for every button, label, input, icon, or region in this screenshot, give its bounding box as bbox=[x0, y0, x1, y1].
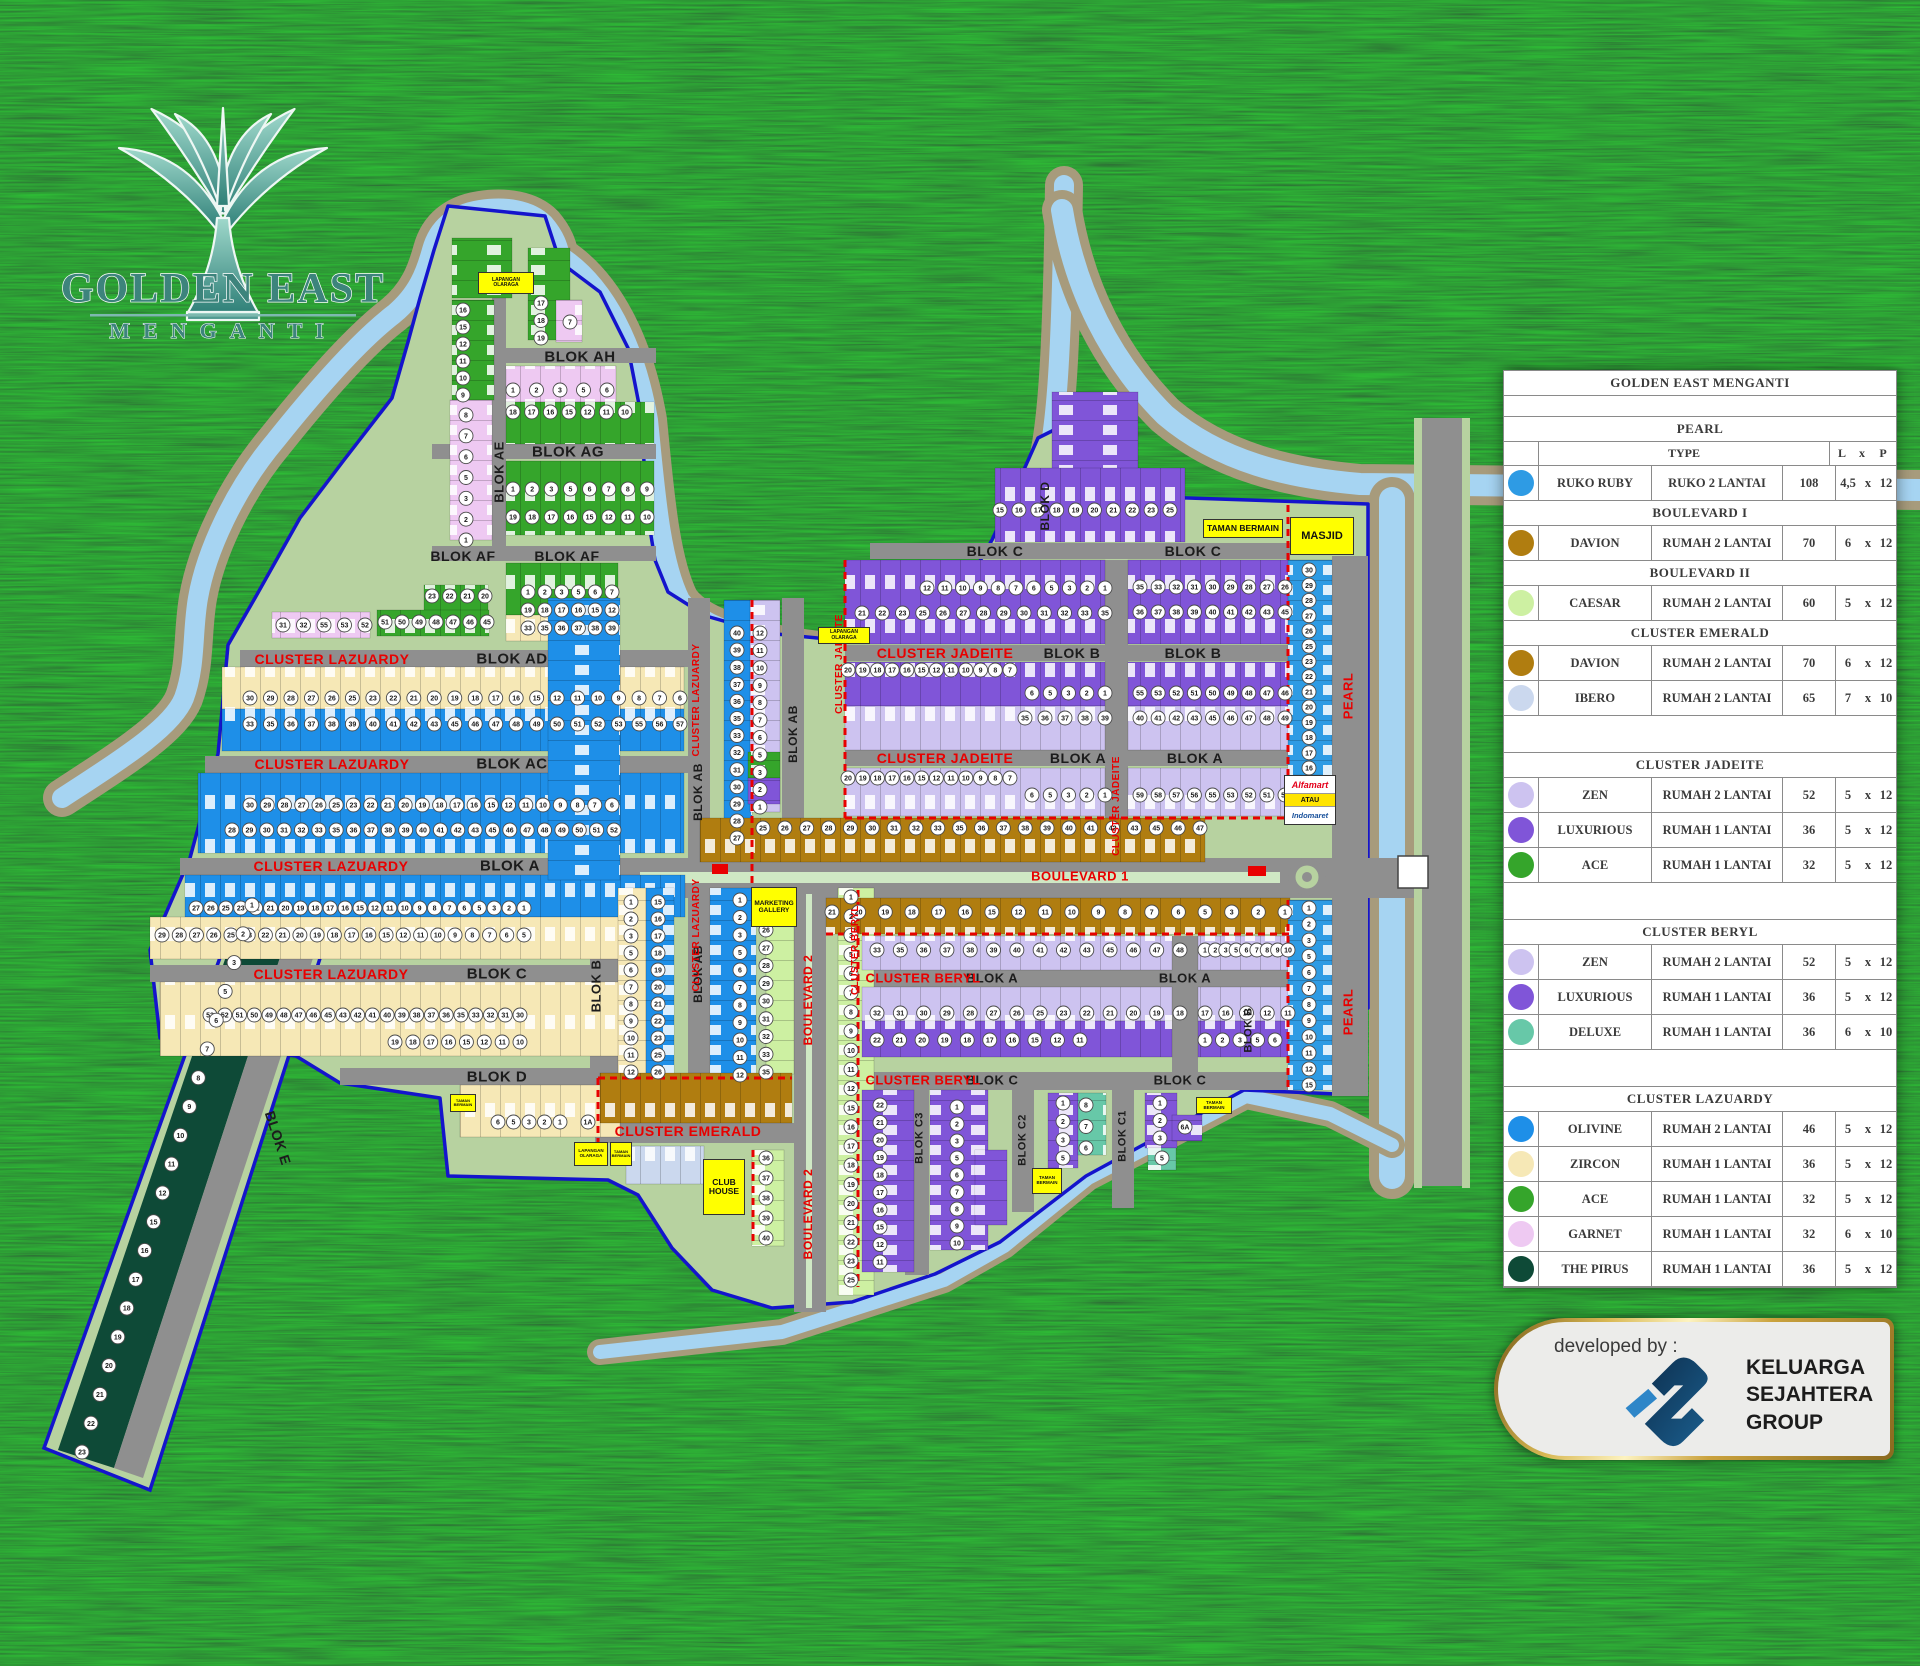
legend-title: GOLDEN EAST MENGANTI bbox=[1504, 371, 1896, 396]
svg-text:6: 6 bbox=[610, 803, 614, 810]
svg-text:2: 2 bbox=[543, 1120, 547, 1127]
svg-text:12: 12 bbox=[1054, 1038, 1062, 1045]
svg-text:8: 8 bbox=[993, 668, 997, 675]
legend-row-caesar: CAESARRUMAH 2 LANTAI605x12 bbox=[1504, 586, 1896, 621]
svg-text:21: 21 bbox=[858, 611, 866, 618]
svg-text:43: 43 bbox=[1083, 948, 1091, 955]
svg-text:39: 39 bbox=[608, 626, 616, 633]
svg-text:5: 5 bbox=[738, 950, 742, 957]
svg-text:21: 21 bbox=[267, 906, 275, 913]
svg-text:22: 22 bbox=[1128, 508, 1136, 515]
svg-text:52: 52 bbox=[361, 623, 369, 630]
svg-text:12: 12 bbox=[756, 631, 764, 638]
svg-text:2: 2 bbox=[629, 917, 633, 924]
svg-text:10: 10 bbox=[401, 906, 409, 913]
svg-text:33: 33 bbox=[733, 733, 741, 740]
svg-text:9: 9 bbox=[758, 683, 762, 690]
svg-text:50: 50 bbox=[398, 620, 406, 627]
svg-text:27: 27 bbox=[959, 611, 967, 618]
svg-text:2: 2 bbox=[1061, 1119, 1065, 1126]
svg-text:5: 5 bbox=[464, 475, 468, 482]
svg-text:21: 21 bbox=[876, 1120, 884, 1127]
svg-text:8: 8 bbox=[464, 413, 468, 420]
svg-text:32: 32 bbox=[762, 1034, 770, 1041]
svg-text:25: 25 bbox=[1305, 644, 1313, 651]
block-label: BLOK A bbox=[1159, 972, 1211, 985]
svg-text:49: 49 bbox=[1227, 691, 1235, 698]
svg-text:11: 11 bbox=[498, 1040, 506, 1047]
svg-text:55: 55 bbox=[1136, 691, 1144, 698]
svg-text:30: 30 bbox=[762, 999, 770, 1006]
facility-marketing-gallery: MARKETING GALLERY bbox=[751, 887, 797, 927]
svg-text:1: 1 bbox=[849, 895, 853, 902]
svg-text:30: 30 bbox=[246, 803, 254, 810]
svg-text:48: 48 bbox=[1263, 716, 1271, 723]
svg-text:19: 19 bbox=[847, 1182, 855, 1189]
svg-text:26: 26 bbox=[939, 611, 947, 618]
svg-text:6: 6 bbox=[214, 1018, 218, 1025]
svg-text:5: 5 bbox=[1048, 691, 1052, 698]
svg-text:37: 37 bbox=[367, 828, 375, 835]
svg-text:31: 31 bbox=[733, 767, 741, 774]
svg-text:17: 17 bbox=[528, 410, 536, 417]
svg-text:10: 10 bbox=[621, 410, 629, 417]
cluster-label: PEARL bbox=[1342, 989, 1355, 1036]
legend-section-header: CLUSTER BERYL bbox=[1504, 920, 1896, 945]
svg-text:30: 30 bbox=[1305, 568, 1313, 575]
svg-text:8: 8 bbox=[433, 906, 437, 913]
svg-text:21: 21 bbox=[279, 933, 287, 940]
svg-text:12: 12 bbox=[932, 668, 940, 675]
svg-text:2: 2 bbox=[1307, 922, 1311, 929]
svg-text:18: 18 bbox=[908, 910, 916, 917]
svg-text:47: 47 bbox=[449, 620, 457, 627]
svg-text:18: 18 bbox=[528, 515, 536, 522]
svg-text:9: 9 bbox=[461, 393, 465, 400]
svg-text:1: 1 bbox=[1283, 910, 1287, 917]
svg-text:21: 21 bbox=[1109, 508, 1117, 515]
svg-text:3: 3 bbox=[1067, 793, 1071, 800]
svg-text:19: 19 bbox=[524, 608, 532, 615]
svg-text:45: 45 bbox=[451, 722, 459, 729]
svg-text:12: 12 bbox=[876, 1242, 884, 1249]
legend-spacer bbox=[1504, 396, 1896, 417]
svg-text:46: 46 bbox=[1227, 716, 1235, 723]
svg-text:8: 8 bbox=[470, 933, 474, 940]
svg-text:20: 20 bbox=[844, 668, 852, 675]
svg-text:27: 27 bbox=[762, 945, 770, 952]
svg-text:18: 18 bbox=[330, 933, 338, 940]
svg-text:28: 28 bbox=[966, 1011, 974, 1018]
svg-text:6: 6 bbox=[1032, 586, 1036, 593]
svg-text:12: 12 bbox=[627, 1070, 635, 1077]
svg-text:10: 10 bbox=[434, 933, 442, 940]
cluster-label: CLUSTER LAZUARDY bbox=[692, 879, 702, 992]
svg-text:2: 2 bbox=[543, 590, 547, 597]
block-label: BLOK D bbox=[1039, 482, 1051, 531]
svg-text:6: 6 bbox=[505, 933, 509, 940]
svg-text:5: 5 bbox=[582, 388, 586, 395]
svg-text:41: 41 bbox=[1036, 948, 1044, 955]
developer-name: KELUARGA SEJAHTERA GROUP bbox=[1746, 1354, 1873, 1436]
svg-text:50: 50 bbox=[575, 828, 583, 835]
svg-text:17: 17 bbox=[537, 301, 545, 308]
facility-taman-bermain: TAMAN BERMAIN bbox=[610, 1142, 632, 1166]
svg-text:11: 11 bbox=[941, 586, 949, 593]
svg-text:1: 1 bbox=[1307, 906, 1311, 913]
svg-text:52: 52 bbox=[610, 828, 618, 835]
svg-text:3: 3 bbox=[1067, 691, 1071, 698]
svg-text:7: 7 bbox=[607, 487, 611, 494]
svg-text:16: 16 bbox=[546, 410, 554, 417]
svg-text:20: 20 bbox=[1129, 1011, 1137, 1018]
cluster-label: CLUSTER LAZUARDY bbox=[255, 652, 410, 666]
svg-text:36: 36 bbox=[920, 948, 928, 955]
svg-text:12: 12 bbox=[736, 1073, 744, 1080]
svg-text:1: 1 bbox=[1103, 691, 1107, 698]
svg-text:12: 12 bbox=[923, 586, 931, 593]
svg-text:22: 22 bbox=[1305, 674, 1313, 681]
svg-text:6A: 6A bbox=[1181, 1125, 1190, 1132]
svg-text:30: 30 bbox=[868, 826, 876, 833]
svg-text:8: 8 bbox=[1084, 1103, 1088, 1110]
block-label: BLOK C bbox=[967, 544, 1024, 558]
svg-text:25: 25 bbox=[919, 611, 927, 618]
svg-text:11: 11 bbox=[386, 906, 394, 913]
svg-text:45: 45 bbox=[1106, 948, 1114, 955]
svg-text:23: 23 bbox=[1060, 1011, 1068, 1018]
svg-text:26: 26 bbox=[210, 933, 218, 940]
svg-text:16: 16 bbox=[567, 515, 575, 522]
svg-text:50: 50 bbox=[1209, 691, 1217, 698]
svg-text:7: 7 bbox=[1008, 668, 1012, 675]
svg-text:49: 49 bbox=[415, 620, 423, 627]
svg-text:15: 15 bbox=[565, 410, 573, 417]
svg-text:47: 47 bbox=[1245, 716, 1253, 723]
svg-text:21: 21 bbox=[1106, 1011, 1114, 1018]
svg-text:16: 16 bbox=[654, 917, 662, 924]
svg-text:18: 18 bbox=[1176, 1011, 1184, 1018]
svg-text:25: 25 bbox=[759, 826, 767, 833]
legend-section-header: BOULEVARD II bbox=[1504, 561, 1896, 586]
ksg-logo-icon bbox=[1616, 1354, 1726, 1450]
svg-text:1: 1 bbox=[526, 590, 530, 597]
svg-text:45: 45 bbox=[483, 620, 491, 627]
svg-text:35: 35 bbox=[956, 826, 964, 833]
svg-text:23: 23 bbox=[350, 803, 358, 810]
svg-text:18: 18 bbox=[541, 608, 549, 615]
svg-text:6: 6 bbox=[955, 1173, 959, 1180]
svg-text:47: 47 bbox=[1263, 691, 1271, 698]
svg-text:16: 16 bbox=[512, 696, 520, 703]
svg-text:6: 6 bbox=[738, 968, 742, 975]
svg-text:7: 7 bbox=[955, 1190, 959, 1197]
svg-text:3: 3 bbox=[492, 906, 496, 913]
svg-text:20: 20 bbox=[430, 696, 438, 703]
svg-text:37: 37 bbox=[762, 1176, 770, 1183]
svg-text:49: 49 bbox=[1281, 716, 1289, 723]
svg-text:49: 49 bbox=[533, 722, 541, 729]
svg-text:33: 33 bbox=[762, 1052, 770, 1059]
svg-text:2: 2 bbox=[758, 787, 762, 794]
svg-text:12: 12 bbox=[553, 696, 561, 703]
legend-column-headers: TYPELxP bbox=[1504, 442, 1896, 466]
svg-text:7: 7 bbox=[448, 906, 452, 913]
svg-text:9: 9 bbox=[979, 776, 983, 783]
svg-text:27: 27 bbox=[193, 933, 201, 940]
svg-text:20: 20 bbox=[918, 1038, 926, 1045]
svg-text:48: 48 bbox=[280, 1013, 288, 1020]
svg-text:39: 39 bbox=[733, 648, 741, 655]
block-label: BLOK B bbox=[1244, 1007, 1255, 1052]
legend-row-garnet: GARNETRUMAH 1 LANTAI326x10 bbox=[1504, 1217, 1896, 1252]
svg-text:1: 1 bbox=[738, 898, 742, 905]
svg-text:1: 1 bbox=[758, 805, 762, 812]
svg-text:9: 9 bbox=[558, 803, 562, 810]
facility-lapangan-olaraga: LAPANGAN OLARAGA bbox=[818, 627, 870, 644]
svg-text:46: 46 bbox=[1174, 826, 1182, 833]
svg-text:10: 10 bbox=[736, 1038, 744, 1045]
svg-text:11: 11 bbox=[168, 1162, 176, 1169]
svg-text:15: 15 bbox=[463, 1040, 471, 1047]
svg-text:9: 9 bbox=[1276, 948, 1280, 955]
svg-text:8: 8 bbox=[629, 1002, 633, 1009]
block-label: BLOK AE bbox=[493, 441, 506, 503]
svg-text:10: 10 bbox=[1068, 910, 1076, 917]
svg-text:37: 37 bbox=[575, 626, 583, 633]
svg-text:55: 55 bbox=[320, 623, 328, 630]
legend-row-davion: DAVIONRUMAH 2 LANTAI706x12 bbox=[1504, 526, 1896, 561]
svg-text:27: 27 bbox=[298, 803, 306, 810]
svg-text:48: 48 bbox=[432, 620, 440, 627]
svg-text:6: 6 bbox=[758, 735, 762, 742]
svg-text:18: 18 bbox=[471, 696, 479, 703]
svg-text:11: 11 bbox=[603, 410, 611, 417]
svg-text:41: 41 bbox=[368, 1013, 376, 1020]
cluster-label: CLUSTER LAZUARDY bbox=[692, 644, 702, 757]
svg-text:12: 12 bbox=[1015, 910, 1023, 917]
svg-text:12: 12 bbox=[605, 515, 613, 522]
svg-text:12: 12 bbox=[459, 342, 467, 349]
svg-text:43: 43 bbox=[1131, 826, 1139, 833]
block-label: BLOK AF bbox=[534, 549, 599, 563]
cluster-label: BOULEVARD 2 bbox=[802, 1169, 814, 1260]
svg-text:2: 2 bbox=[1221, 1038, 1225, 1045]
svg-text:9: 9 bbox=[979, 668, 983, 675]
svg-text:19: 19 bbox=[537, 336, 545, 343]
svg-text:10: 10 bbox=[962, 776, 970, 783]
svg-text:19: 19 bbox=[313, 933, 321, 940]
svg-text:21: 21 bbox=[96, 1392, 104, 1399]
svg-text:11: 11 bbox=[417, 933, 425, 940]
svg-text:8: 8 bbox=[626, 487, 630, 494]
svg-text:11: 11 bbox=[1305, 1050, 1313, 1057]
svg-text:37: 37 bbox=[428, 1013, 436, 1020]
svg-text:16: 16 bbox=[1015, 508, 1023, 515]
cluster-label: CLUSTER LAZUARDY bbox=[254, 967, 409, 981]
svg-text:53: 53 bbox=[615, 722, 623, 729]
svg-text:38: 38 bbox=[591, 626, 599, 633]
facility-taman-bermain: TAMAN BERMAIN bbox=[1032, 1168, 1062, 1194]
svg-text:23: 23 bbox=[237, 906, 245, 913]
svg-text:11: 11 bbox=[947, 668, 955, 675]
cluster-label: CLUSTER JADEITE bbox=[877, 646, 1014, 660]
svg-text:47: 47 bbox=[1196, 826, 1204, 833]
svg-text:5: 5 bbox=[522, 933, 526, 940]
svg-text:32: 32 bbox=[487, 1013, 495, 1020]
svg-text:29: 29 bbox=[943, 1011, 951, 1018]
svg-text:16: 16 bbox=[341, 906, 349, 913]
svg-text:30: 30 bbox=[516, 1013, 524, 1020]
site-plan-poster: { "brand": {"title": "GOLDEN EAST", "sub… bbox=[0, 0, 1920, 1666]
svg-text:19: 19 bbox=[876, 1155, 884, 1162]
svg-text:39: 39 bbox=[990, 948, 998, 955]
svg-text:3: 3 bbox=[955, 1139, 959, 1146]
svg-text:29: 29 bbox=[847, 826, 855, 833]
svg-text:22: 22 bbox=[873, 1038, 881, 1045]
svg-text:7: 7 bbox=[1014, 586, 1018, 593]
svg-text:22: 22 bbox=[876, 1103, 884, 1110]
svg-text:33: 33 bbox=[1154, 585, 1162, 592]
svg-text:6: 6 bbox=[1245, 948, 1249, 955]
svg-text:18: 18 bbox=[311, 906, 319, 913]
svg-text:15: 15 bbox=[918, 668, 926, 675]
svg-text:21: 21 bbox=[654, 1002, 662, 1009]
svg-text:43: 43 bbox=[471, 828, 479, 835]
svg-text:48: 48 bbox=[541, 828, 549, 835]
svg-text:17: 17 bbox=[986, 1038, 994, 1045]
svg-text:45: 45 bbox=[489, 828, 497, 835]
svg-text:11: 11 bbox=[522, 803, 530, 810]
svg-text:15: 15 bbox=[876, 1225, 884, 1232]
svg-text:3: 3 bbox=[1307, 938, 1311, 945]
legend-row-deluxe: DELUXERUMAH 1 LANTAI366x10 bbox=[1504, 1015, 1896, 1050]
cluster-label: CLUSTER BERYL bbox=[865, 1074, 980, 1087]
svg-text:7: 7 bbox=[1084, 1124, 1088, 1131]
svg-text:37: 37 bbox=[999, 826, 1007, 833]
svg-text:57: 57 bbox=[676, 722, 684, 729]
svg-text:29: 29 bbox=[263, 803, 271, 810]
svg-text:32: 32 bbox=[733, 750, 741, 757]
svg-text:12: 12 bbox=[505, 803, 513, 810]
svg-text:22: 22 bbox=[262, 933, 270, 940]
svg-text:19: 19 bbox=[859, 668, 867, 675]
svg-text:20: 20 bbox=[296, 933, 304, 940]
svg-text:55: 55 bbox=[1209, 793, 1217, 800]
svg-text:15: 15 bbox=[654, 900, 662, 907]
svg-text:41: 41 bbox=[1087, 826, 1095, 833]
svg-text:8: 8 bbox=[1123, 910, 1127, 917]
svg-text:17: 17 bbox=[876, 1190, 884, 1197]
legend-section-header: CLUSTER LAZUARDY bbox=[1504, 1087, 1896, 1112]
svg-text:35: 35 bbox=[1136, 585, 1144, 592]
legend-row-zircon: ZIRCONRUMAH 1 LANTAI365x12 bbox=[1504, 1147, 1896, 1182]
svg-text:35: 35 bbox=[896, 948, 904, 955]
svg-text:15: 15 bbox=[1031, 1038, 1039, 1045]
svg-text:18: 18 bbox=[509, 410, 517, 417]
svg-text:30: 30 bbox=[1209, 585, 1217, 592]
brand-title: GOLDEN EAST bbox=[61, 266, 385, 312]
legend-row-zen: ZENRUMAH 2 LANTAI525x12 bbox=[1504, 945, 1896, 980]
svg-text:15: 15 bbox=[1305, 1083, 1313, 1090]
svg-text:58: 58 bbox=[1154, 793, 1162, 800]
svg-text:35: 35 bbox=[1021, 716, 1029, 723]
svg-text:5: 5 bbox=[1307, 954, 1311, 961]
svg-text:3: 3 bbox=[1061, 1137, 1065, 1144]
svg-text:15: 15 bbox=[918, 776, 926, 783]
svg-text:6: 6 bbox=[678, 696, 682, 703]
svg-text:29: 29 bbox=[158, 933, 166, 940]
svg-text:41: 41 bbox=[436, 828, 444, 835]
svg-text:17: 17 bbox=[492, 696, 500, 703]
svg-text:39: 39 bbox=[1101, 716, 1109, 723]
svg-text:11: 11 bbox=[847, 1067, 855, 1074]
developer-box: developed by : KELUARGA SEJAHTERA GROUP bbox=[1494, 1318, 1894, 1460]
svg-text:45: 45 bbox=[1152, 826, 1160, 833]
svg-text:26: 26 bbox=[207, 906, 215, 913]
svg-text:53: 53 bbox=[341, 623, 349, 630]
block-label: BLOK C bbox=[1154, 1074, 1207, 1087]
cluster-label: CLUSTER EMERALD bbox=[615, 1124, 762, 1138]
svg-text:37: 37 bbox=[1154, 610, 1162, 617]
svg-text:3: 3 bbox=[758, 770, 762, 777]
svg-text:40: 40 bbox=[383, 1013, 391, 1020]
facility-taman-bermain: TAMAN BERMAIN bbox=[1196, 1097, 1232, 1114]
svg-text:35: 35 bbox=[762, 1070, 770, 1077]
svg-text:28: 28 bbox=[228, 828, 236, 835]
svg-text:9: 9 bbox=[738, 1020, 742, 1027]
facility-lapangan-olaraga: LAPANGAN OLARAGA bbox=[574, 1142, 608, 1166]
svg-text:6: 6 bbox=[593, 590, 597, 597]
svg-text:8: 8 bbox=[1307, 1002, 1311, 1009]
svg-text:17: 17 bbox=[1305, 750, 1313, 757]
svg-text:17: 17 bbox=[654, 934, 662, 941]
svg-text:18: 18 bbox=[537, 318, 545, 325]
svg-text:18: 18 bbox=[876, 1172, 884, 1179]
legend-section-header: BOULEVARD I bbox=[1504, 501, 1896, 526]
svg-text:48: 48 bbox=[1176, 948, 1184, 955]
block-label: BLOK C3 bbox=[915, 1112, 926, 1164]
svg-text:8: 8 bbox=[993, 776, 997, 783]
svg-text:43: 43 bbox=[339, 1013, 347, 1020]
svg-text:56: 56 bbox=[656, 722, 664, 729]
svg-text:21: 21 bbox=[828, 910, 836, 917]
legend-row-davion: DAVIONRUMAH 2 LANTAI706x12 bbox=[1504, 646, 1896, 681]
svg-text:2: 2 bbox=[1085, 793, 1089, 800]
svg-text:26: 26 bbox=[781, 826, 789, 833]
svg-text:9: 9 bbox=[187, 1104, 191, 1111]
svg-text:18: 18 bbox=[847, 1163, 855, 1170]
svg-text:39: 39 bbox=[762, 1216, 770, 1223]
svg-text:8: 8 bbox=[196, 1075, 200, 1082]
svg-text:48: 48 bbox=[1245, 691, 1253, 698]
svg-text:46: 46 bbox=[471, 722, 479, 729]
svg-text:40: 40 bbox=[1065, 826, 1073, 833]
svg-text:26: 26 bbox=[654, 1070, 662, 1077]
svg-text:12: 12 bbox=[608, 608, 616, 615]
svg-text:43: 43 bbox=[1190, 716, 1198, 723]
svg-text:38: 38 bbox=[413, 1013, 421, 1020]
svg-text:33: 33 bbox=[934, 826, 942, 833]
svg-text:9: 9 bbox=[645, 487, 649, 494]
svg-text:28: 28 bbox=[980, 611, 988, 618]
svg-text:18: 18 bbox=[1053, 508, 1061, 515]
facility-taman-bermain: TAMAN BERMAIN bbox=[1203, 519, 1283, 538]
svg-text:7: 7 bbox=[1255, 948, 1259, 955]
svg-text:27: 27 bbox=[192, 906, 200, 913]
svg-text:40: 40 bbox=[1013, 948, 1021, 955]
svg-text:46: 46 bbox=[506, 828, 514, 835]
